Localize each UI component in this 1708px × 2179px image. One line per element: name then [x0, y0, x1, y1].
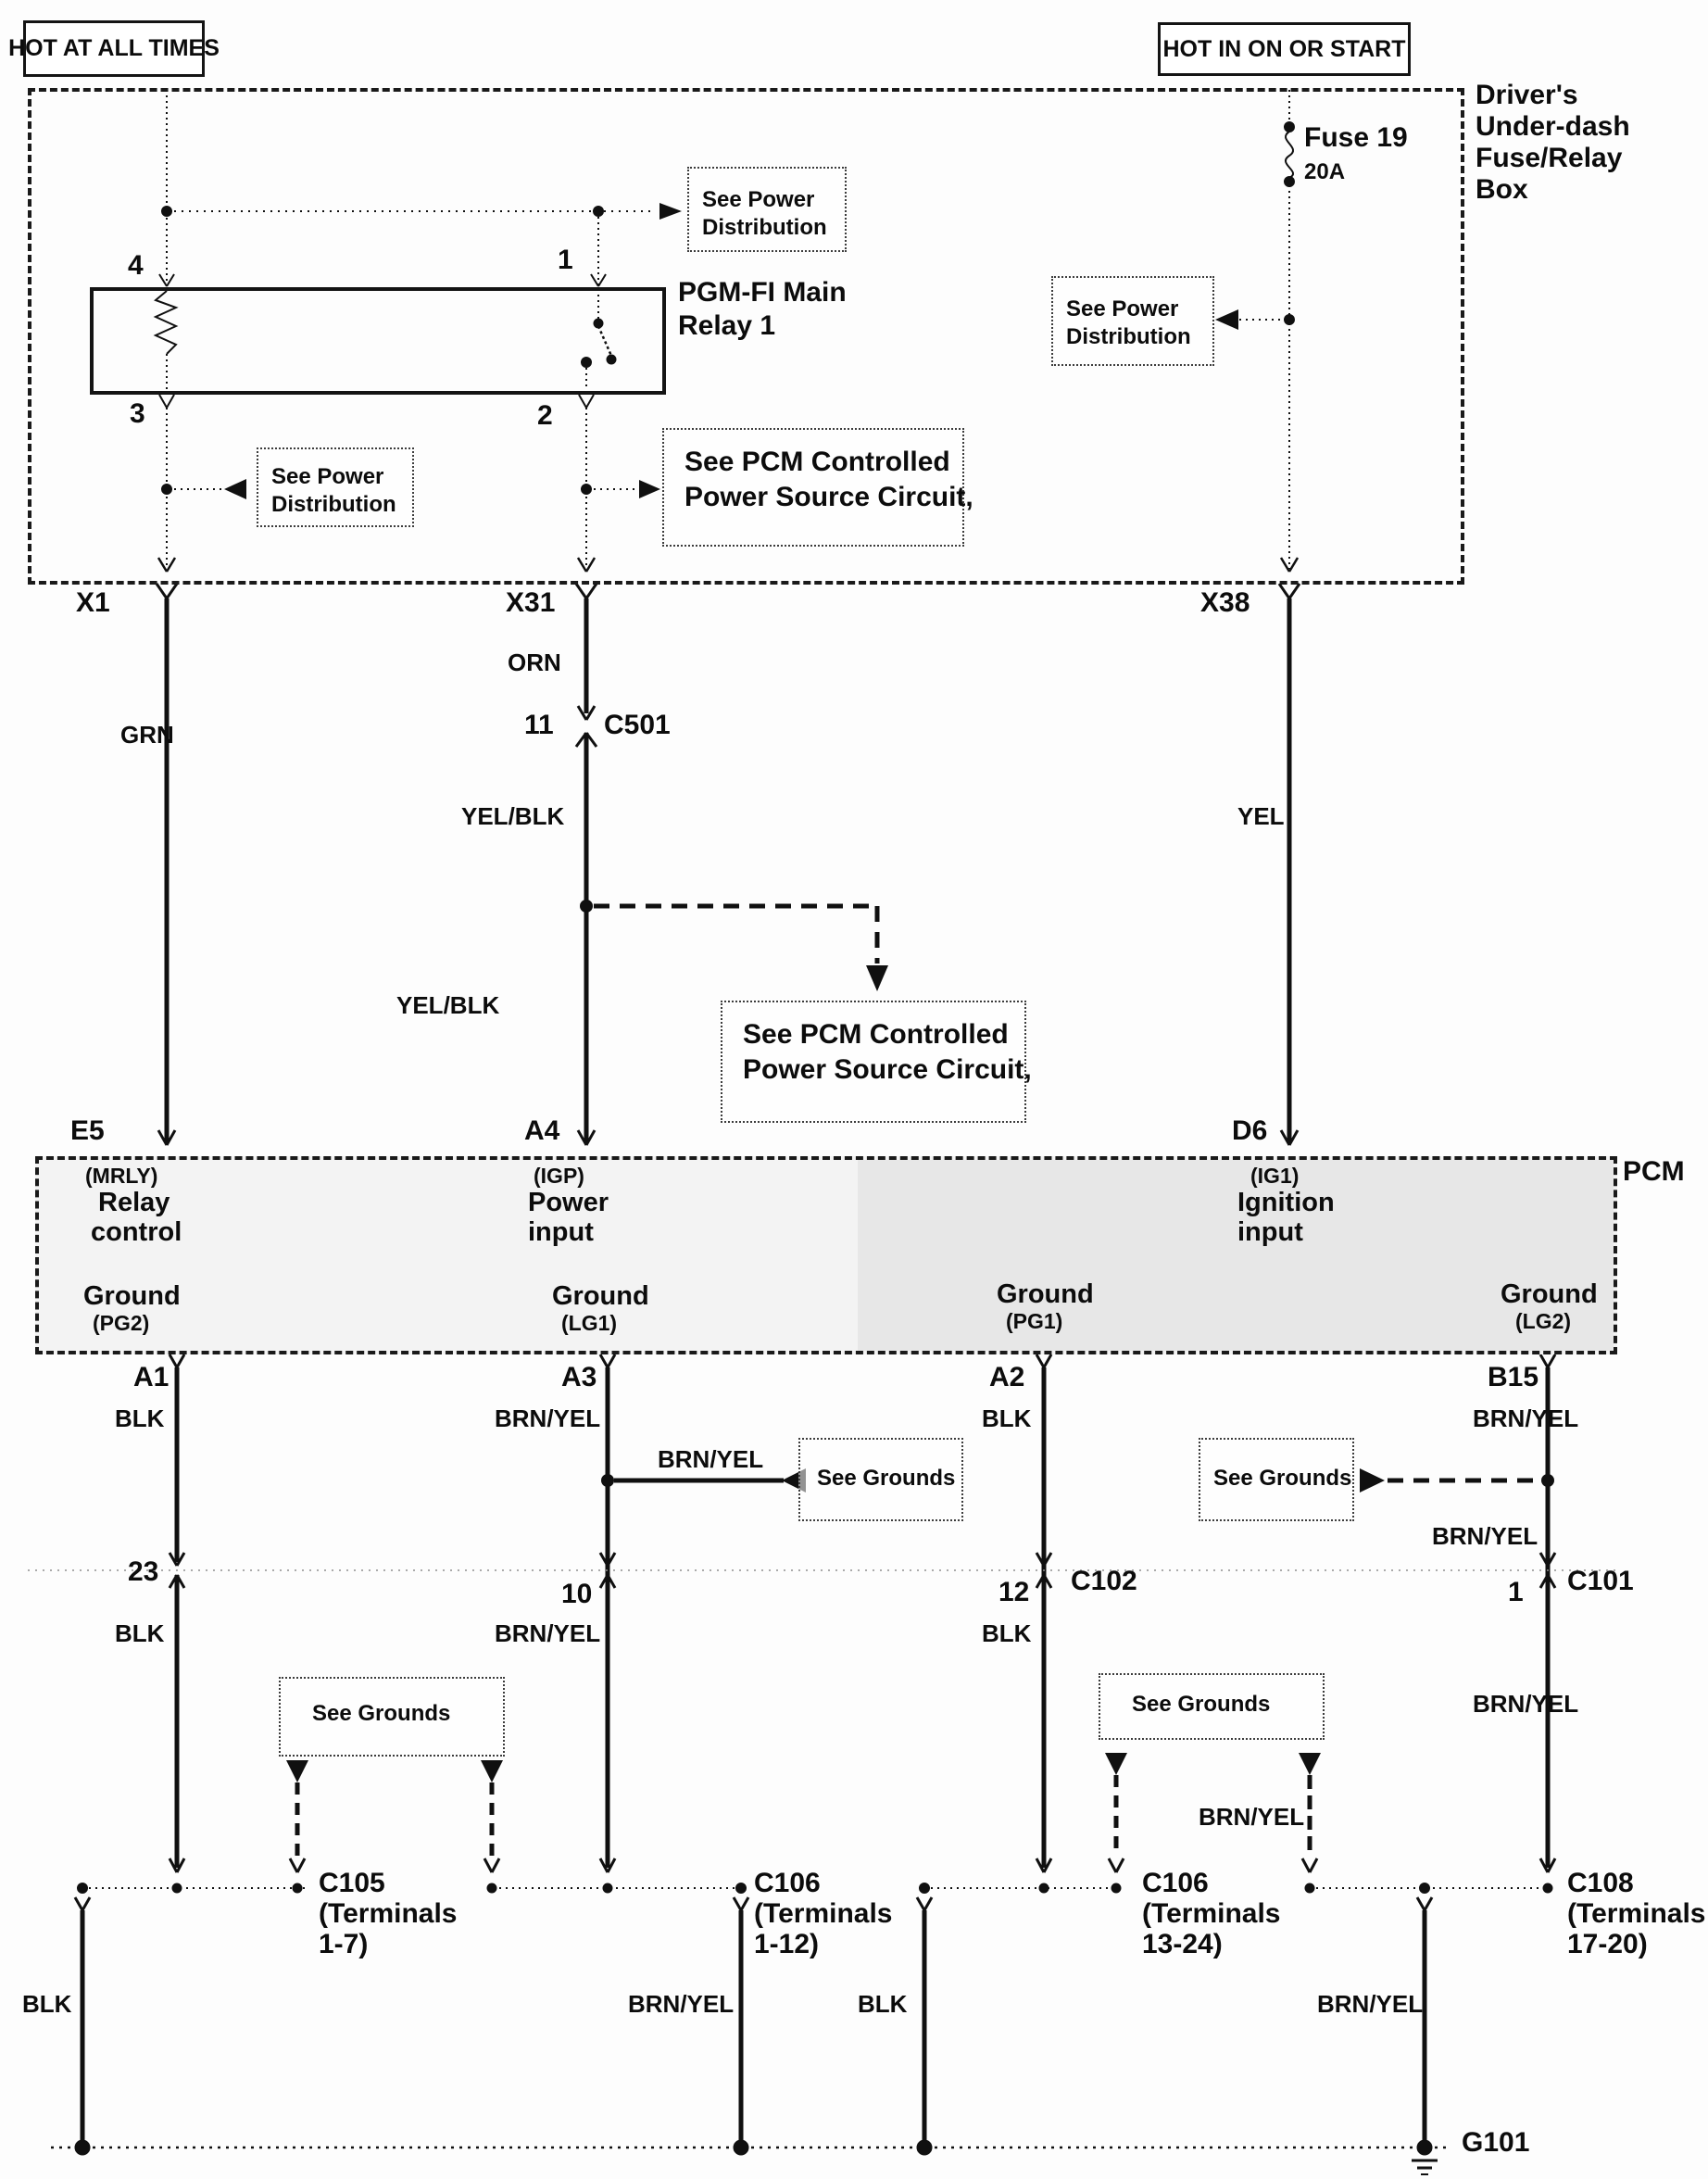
relay-pin2: 2 [537, 400, 553, 432]
ref-text: See PCM Controlled [684, 447, 962, 478]
wire-color-grn: GRN [120, 721, 174, 749]
ref-text: See Power [271, 464, 412, 490]
see-grounds-ref-3: See Grounds [279, 1677, 505, 1757]
pcm-ground-2: Ground [552, 1281, 649, 1312]
wiring-diagram: HOT AT ALL TIMES HOT IN ON OR START Driv… [0, 0, 1708, 2179]
connector-pin-23: 23 [128, 1556, 158, 1588]
c106a-line1: C106 [754, 1868, 893, 1898]
connector-c102: C102 [1071, 1566, 1137, 1597]
c501-pin: 11 [524, 710, 554, 741]
wire-color-yelblk-1: YEL/BLK [461, 802, 564, 831]
wire-color-yelblk-2: YEL/BLK [396, 991, 499, 1020]
c108-line1: C108 [1567, 1868, 1706, 1898]
c105-line2: (Terminals [319, 1898, 458, 1929]
connector-c106-b: C106 (Terminals 13-24) [1142, 1868, 1281, 1959]
wire-color-brnyel-5: BRN/YEL [1473, 1690, 1578, 1719]
relay-pin3: 3 [130, 398, 145, 430]
see-power-distribution-ref-2: See Power Distribution [1051, 276, 1214, 366]
wire-color-brnyel-8: BRN/YEL [1317, 1990, 1423, 2019]
pcm-ground-4: Ground [1501, 1279, 1598, 1310]
see-pcm-power-ref-1: See PCM Controlled Power Source Circuit, [662, 428, 964, 547]
wire-color-blk-6: BLK [858, 1990, 907, 2019]
ref-text: See Grounds [1132, 1692, 1323, 1718]
ref-text: Distribution [271, 492, 412, 518]
pcm-ground-1-code: (PG2) [93, 1311, 149, 1336]
ref-text: Power Source Circuit, [684, 482, 962, 513]
c106a-line2: (Terminals [754, 1898, 893, 1929]
wire-color-blk-5: BLK [22, 1990, 71, 2019]
see-power-distribution-ref-3: See Power Distribution [257, 447, 414, 527]
c105-line3: 1-7) [319, 1929, 458, 1959]
box-title-line4: Box [1476, 174, 1630, 206]
pcm-fn-igp-1: Power [528, 1188, 609, 1218]
relay-pin1: 1 [558, 245, 573, 276]
ref-text: Power Source Circuit, [743, 1054, 1024, 1086]
wire-color-orn: ORN [508, 649, 561, 677]
see-grounds-ref-2: See Grounds [1199, 1438, 1354, 1521]
terminal-d6: D6 [1232, 1115, 1267, 1147]
terminal-a2: A2 [989, 1362, 1024, 1393]
ref-text: See PCM Controlled [743, 1019, 1024, 1051]
terminal-a4: A4 [524, 1115, 559, 1147]
ground-g101: G101 [1462, 2127, 1529, 2159]
relay-name-line2: Relay 1 [678, 309, 847, 343]
see-power-distribution-ref-1: See Power Distribution [687, 167, 847, 252]
wire-color-blk-2: BLK [982, 1404, 1031, 1433]
connector-c105: C105 (Terminals 1-7) [319, 1868, 458, 1959]
pcm-fn-mrly-2: control [91, 1217, 182, 1248]
c106b-line3: 13-24) [1142, 1929, 1281, 1959]
ref-text: Distribution [1066, 324, 1212, 350]
pcm-ground-2-code: (LG1) [561, 1311, 617, 1336]
terminal-a3: A3 [561, 1362, 597, 1393]
connector-c108: C108 (Terminals 17-20) [1567, 1868, 1706, 1959]
pcm-box-shading [858, 1160, 1614, 1351]
connector-pin-10: 10 [561, 1579, 592, 1610]
pgm-fi-main-relay-box [90, 287, 666, 395]
pcm-ground-3: Ground [997, 1279, 1094, 1310]
pcm-fn-ig1-2: input [1237, 1217, 1303, 1248]
connector-c106-a: C106 (Terminals 1-12) [754, 1868, 893, 1959]
pcm-fn-igp-code: (IGP) [534, 1164, 584, 1189]
pcm-fn-ig1-code: (IG1) [1250, 1164, 1299, 1189]
c108-line2: (Terminals [1567, 1898, 1706, 1929]
c105-line1: C105 [319, 1868, 458, 1898]
ref-text: See Power [1066, 296, 1212, 322]
ref-text: Distribution [702, 215, 845, 241]
wire-color-brnyel-3: BRN/YEL [1432, 1522, 1538, 1551]
connector-x31: X31 [506, 587, 555, 619]
box-title-line3: Fuse/Relay [1476, 143, 1630, 174]
pcm-fn-igp-2: input [528, 1217, 594, 1248]
wire-color-blk-4: BLK [982, 1619, 1031, 1648]
hot-at-all-times-box: HOT AT ALL TIMES [23, 20, 205, 77]
wire-color-brnyel-arrow: BRN/YEL [658, 1445, 763, 1474]
connector-c501: C501 [604, 710, 671, 741]
hot-in-on-or-start-label: HOT IN ON OR START [1162, 36, 1405, 63]
wire-color-brnyel-7: BRN/YEL [628, 1990, 734, 2019]
fuse-name: Fuse 19 [1304, 122, 1408, 154]
box-title-line1: Driver's [1476, 80, 1630, 111]
see-grounds-ref-1: See Grounds [798, 1438, 963, 1521]
relay-pin4: 4 [128, 250, 144, 282]
connector-c101: C101 [1567, 1566, 1634, 1597]
terminal-b15: B15 [1488, 1362, 1538, 1393]
pcm-fn-mrly-1: Relay [98, 1188, 170, 1218]
wire-color-brnyel-1: BRN/YEL [495, 1404, 600, 1433]
ref-text: See Grounds [312, 1701, 503, 1727]
fuse-rating: 20A [1304, 159, 1345, 185]
pcm-ground-4-code: (LG2) [1515, 1309, 1571, 1334]
connector-x38: X38 [1200, 587, 1250, 619]
terminal-a1: A1 [133, 1362, 169, 1393]
pcm-fn-mrly-code: (MRLY) [85, 1164, 157, 1189]
wire-color-brnyel-2: BRN/YEL [1473, 1404, 1578, 1433]
c108-line3: 17-20) [1567, 1929, 1706, 1959]
wire-color-blk-3: BLK [115, 1619, 164, 1648]
c106b-line1: C106 [1142, 1868, 1281, 1898]
see-grounds-ref-4: See Grounds [1099, 1673, 1325, 1740]
ref-text: See Power [702, 187, 845, 213]
see-pcm-power-ref-2: See PCM Controlled Power Source Circuit, [721, 1001, 1026, 1123]
c102-pin: 12 [998, 1577, 1029, 1608]
c101-pin: 1 [1508, 1577, 1524, 1608]
relay-name-line1: PGM-FI Main [678, 276, 847, 309]
wire-color-brnyel-4: BRN/YEL [495, 1619, 600, 1648]
fuse-relay-box-title: Driver's Under-dash Fuse/Relay Box [1476, 80, 1630, 206]
wire-color-yel: YEL [1237, 802, 1285, 831]
c106a-line3: 1-12) [754, 1929, 893, 1959]
pcm-ground-3-code: (PG1) [1006, 1309, 1062, 1334]
hot-at-all-times-label: HOT AT ALL TIMES [8, 35, 220, 62]
pcm-fn-ig1-1: Ignition [1237, 1188, 1335, 1218]
box-title-line2: Under-dash [1476, 111, 1630, 143]
wire-color-blk-1: BLK [115, 1404, 164, 1433]
hot-in-on-or-start-box: HOT IN ON OR START [1158, 22, 1411, 76]
pcm-label: PCM [1623, 1156, 1685, 1188]
pcm-box-outline [35, 1156, 1617, 1354]
c106b-line2: (Terminals [1142, 1898, 1281, 1929]
ref-text: See Grounds [1213, 1466, 1352, 1492]
relay-name: PGM-FI Main Relay 1 [678, 276, 847, 343]
terminal-e5: E5 [70, 1115, 105, 1147]
ref-text: See Grounds [817, 1466, 961, 1492]
connector-x1: X1 [76, 587, 110, 619]
pcm-ground-1: Ground [83, 1281, 181, 1312]
wire-color-brnyel-6: BRN/YEL [1199, 1803, 1304, 1832]
